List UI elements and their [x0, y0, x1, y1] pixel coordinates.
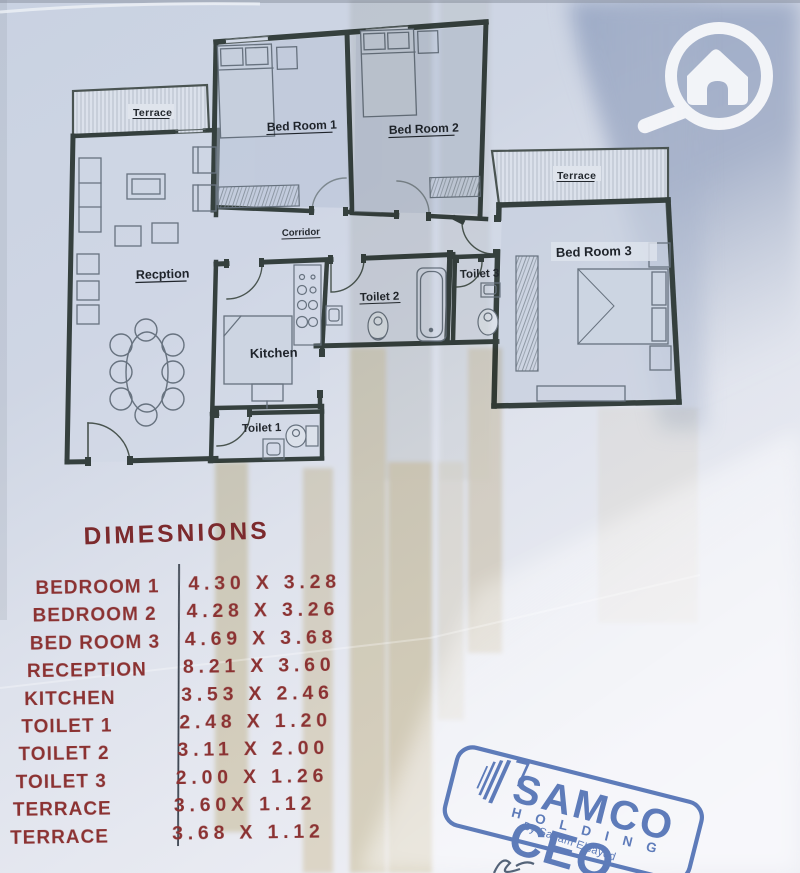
svg-text:Kitchen: Kitchen	[250, 345, 298, 361]
svg-text:4.30 X 3.28: 4.30 X 3.28	[188, 571, 341, 595]
svg-text:BED ROOM 3: BED ROOM 3	[30, 632, 161, 655]
svg-text:TOILET 2: TOILET 2	[18, 743, 109, 765]
svg-text:Toilet 1: Toilet 1	[242, 422, 282, 435]
svg-text:2.48 X 1.20: 2.48 X 1.20	[179, 709, 332, 733]
svg-text:3.60X 1.12: 3.60X 1.12	[174, 793, 317, 817]
svg-text:BEDROOM 2: BEDROOM 2	[32, 604, 156, 627]
svg-text:8.21 X 3.60: 8.21 X 3.60	[183, 654, 336, 678]
svg-text:3.68 X 1.12: 3.68 X 1.12	[172, 820, 325, 844]
svg-text:4.69 X 3.68: 4.69 X 3.68	[185, 626, 338, 650]
svg-text:Bed Room 1: Bed Room 1	[267, 118, 338, 134]
svg-text:TERRACE: TERRACE	[13, 799, 112, 821]
svg-text:2.00 X 1.26: 2.00 X 1.26	[176, 765, 329, 789]
svg-text:3.11 X 2.00: 3.11 X 2.00	[177, 737, 329, 761]
svg-text:3.53 X 2.46: 3.53 X 2.46	[181, 682, 334, 706]
svg-text:KITCHEN: KITCHEN	[24, 688, 116, 710]
svg-text:Terrace: Terrace	[133, 107, 172, 119]
svg-text:Terrace: Terrace	[557, 170, 596, 182]
svg-text:TOILET 3: TOILET 3	[16, 771, 107, 793]
svg-text:BEDROOM 1: BEDROOM 1	[35, 576, 159, 599]
svg-text:TERRACE: TERRACE	[10, 826, 109, 848]
svg-text:Recption: Recption	[136, 267, 190, 282]
svg-text:RECEPTION: RECEPTION	[27, 660, 147, 683]
svg-text:TOILET 1: TOILET 1	[21, 715, 112, 737]
svg-text:Corridor: Corridor	[282, 227, 321, 239]
svg-text:4.28 X 3.26: 4.28 X 3.26	[186, 598, 339, 622]
svg-text:Bed Room 3: Bed Room 3	[556, 243, 632, 260]
